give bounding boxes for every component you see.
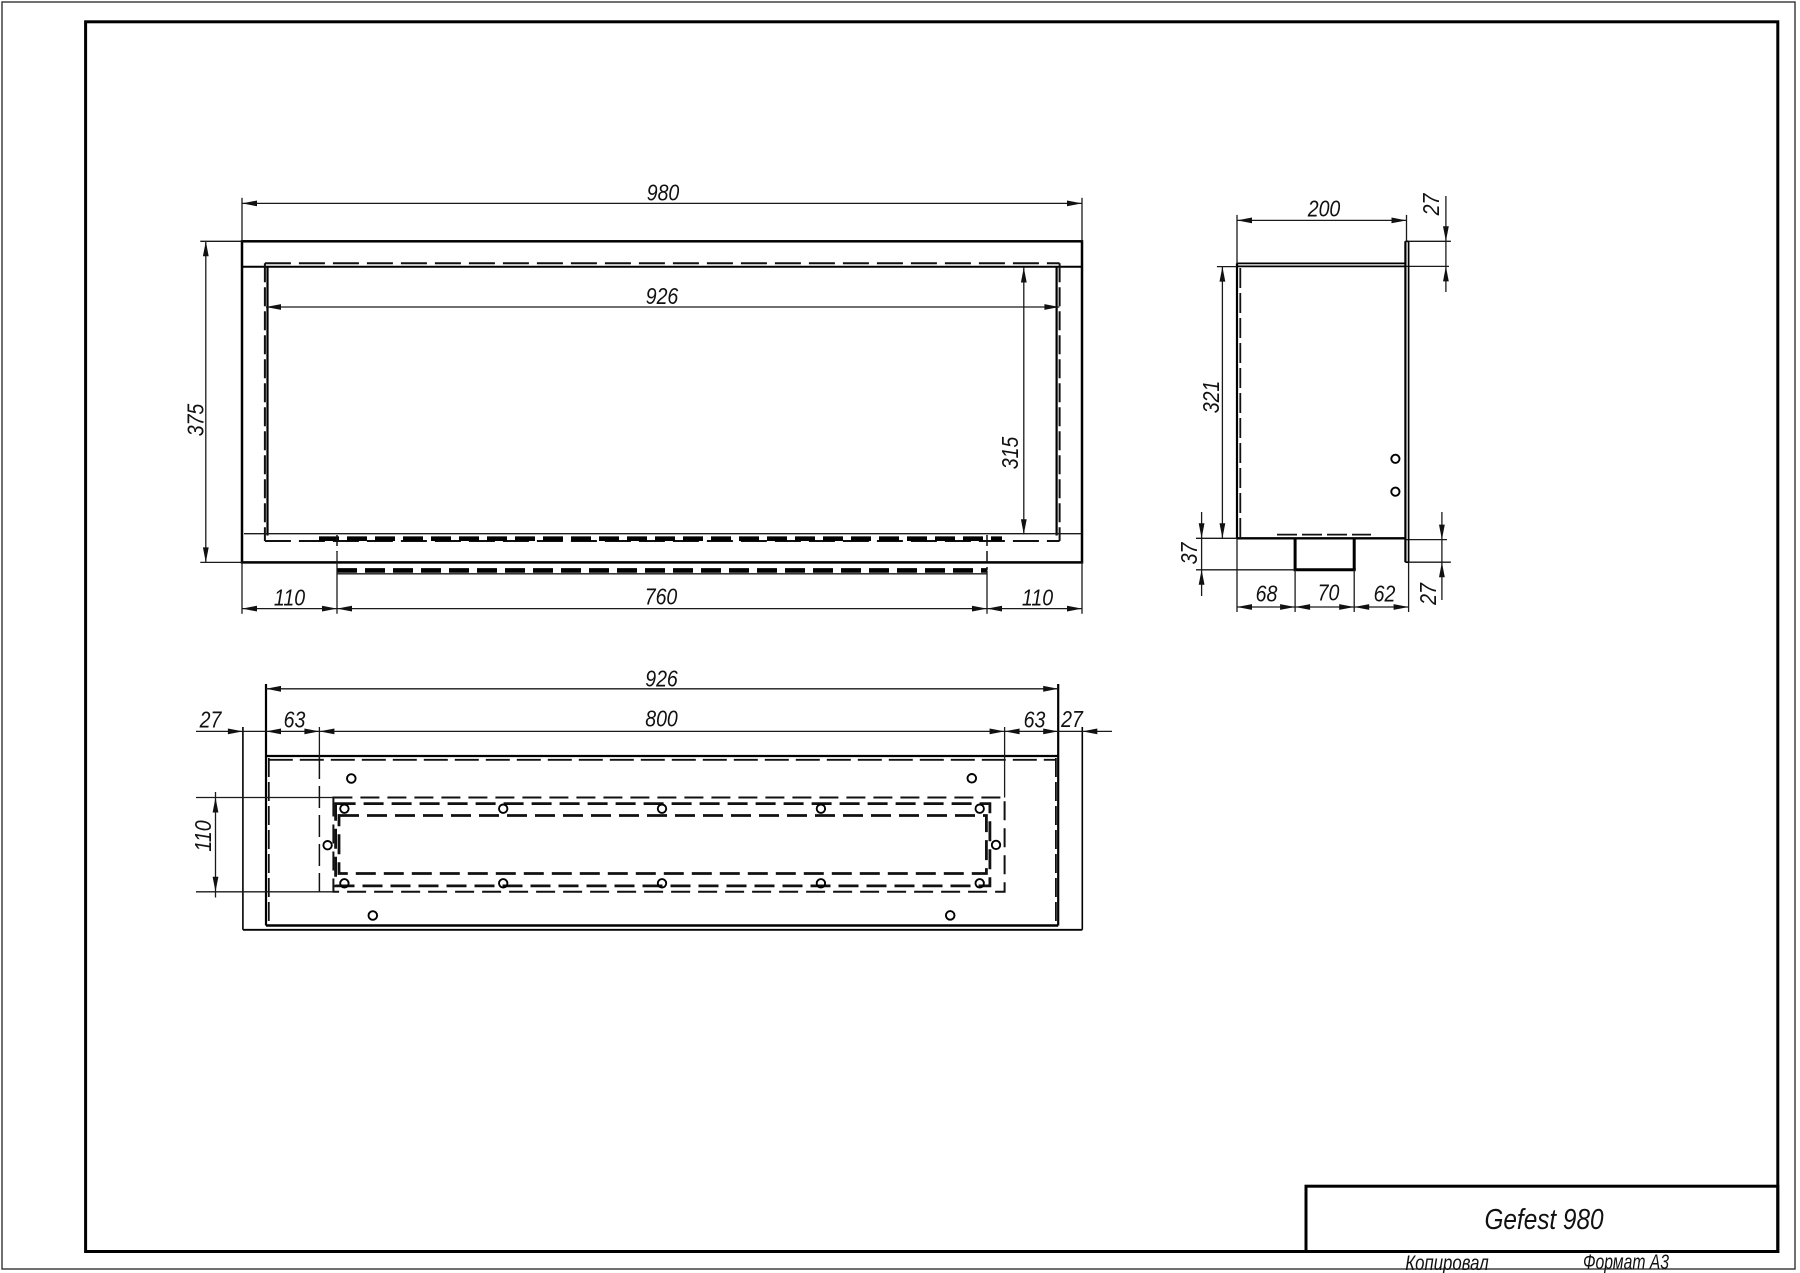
svg-text:110: 110 bbox=[191, 820, 217, 851]
svg-text:63: 63 bbox=[284, 707, 306, 733]
svg-text:926: 926 bbox=[645, 666, 678, 692]
svg-text:68: 68 bbox=[1256, 581, 1278, 607]
svg-text:27: 27 bbox=[199, 707, 223, 733]
svg-text:27: 27 bbox=[1416, 582, 1442, 606]
svg-text:110: 110 bbox=[1022, 585, 1053, 611]
svg-text:62: 62 bbox=[1374, 581, 1396, 607]
svg-text:980: 980 bbox=[647, 180, 680, 206]
svg-text:63: 63 bbox=[1024, 707, 1046, 733]
svg-text:110: 110 bbox=[274, 585, 305, 611]
svg-text:800: 800 bbox=[645, 706, 678, 732]
svg-text:Формат А3: Формат А3 bbox=[1583, 1250, 1670, 1273]
svg-text:926: 926 bbox=[646, 284, 679, 310]
svg-text:Копировал: Копировал bbox=[1405, 1252, 1489, 1273]
svg-text:200: 200 bbox=[1307, 196, 1341, 222]
svg-text:27: 27 bbox=[1418, 193, 1444, 217]
svg-text:Gefest 980: Gefest 980 bbox=[1484, 1203, 1603, 1235]
svg-text:760: 760 bbox=[645, 584, 678, 610]
svg-text:321: 321 bbox=[1199, 381, 1225, 414]
svg-text:70: 70 bbox=[1318, 580, 1340, 606]
svg-text:375: 375 bbox=[183, 404, 209, 437]
svg-text:315: 315 bbox=[998, 437, 1024, 470]
svg-text:37: 37 bbox=[1177, 542, 1203, 565]
svg-text:27: 27 bbox=[1060, 707, 1084, 733]
